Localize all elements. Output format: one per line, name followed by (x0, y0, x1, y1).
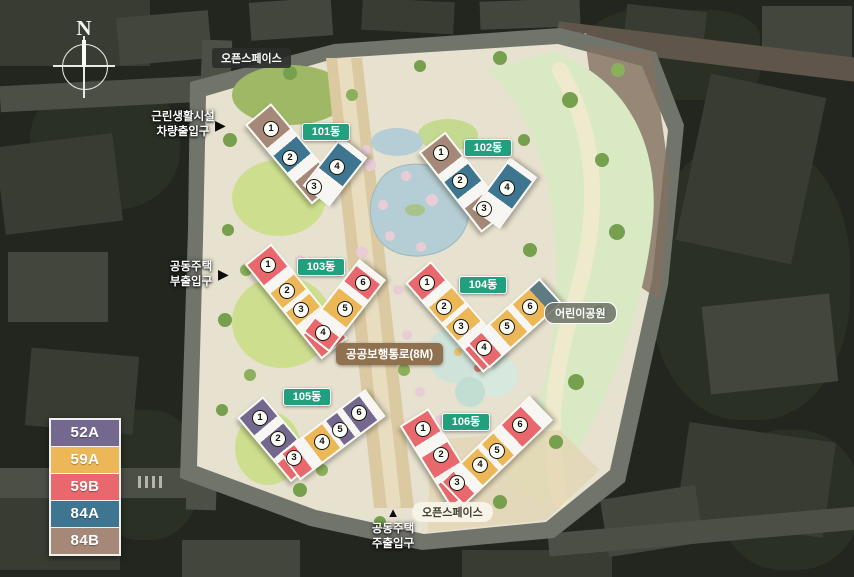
unit-circle: 4 (472, 457, 488, 473)
open-space-label-top: 오픈스페이스 (212, 48, 291, 68)
unit-circle: 2 (279, 283, 295, 299)
building-101-label: 101동 (302, 123, 350, 141)
unit-circle: 2 (436, 299, 452, 315)
entrance-text-line2: 차량출입구 (157, 126, 210, 138)
unit-type-legend: 52A 59A 59B 84A 84B (49, 418, 121, 556)
legend-item-84b: 84B (51, 528, 119, 554)
unit-circle: 3 (476, 201, 492, 217)
apartment-main-entrance-arrow: ▲ (348, 505, 438, 522)
children-park-label: 어린이공원 (544, 302, 617, 324)
north-compass: N (40, 14, 140, 124)
legend-item-84a: 84A (51, 501, 119, 528)
unit-circle: 6 (522, 299, 538, 315)
unit-circle: 4 (476, 340, 492, 356)
unit-circle: 3 (453, 319, 469, 335)
entrance-text-line2: 주출입구 (372, 538, 414, 550)
unit-circle: 4 (314, 434, 330, 450)
building-105-label: 105동 (283, 388, 331, 406)
apartment-side-entrance-arrow: ▶ (218, 266, 229, 283)
unit-circle: 2 (433, 447, 449, 463)
unit-circle: 3 (449, 475, 465, 491)
unit-circle: 1 (263, 121, 279, 137)
unit-circle: 5 (337, 301, 353, 317)
public-walkway-label: 공공보행통로(8M) (336, 343, 443, 365)
retail-vehicle-entrance-arrow: ▶ (215, 117, 226, 134)
unit-circle: 1 (252, 410, 268, 426)
unit-circle: 3 (293, 302, 309, 318)
unit-circle: 5 (332, 422, 348, 438)
unit-circle: 2 (452, 173, 468, 189)
legend-item-59a: 59A (51, 447, 119, 474)
building-102-label: 102동 (464, 139, 512, 157)
unit-circle: 4 (499, 180, 515, 196)
building-103-label: 103동 (297, 258, 345, 276)
unit-circle: 1 (415, 421, 431, 437)
entrance-text-line1: 근린생활시설 (151, 111, 214, 123)
building-104-label: 104동 (459, 276, 507, 294)
unit-circle: 1 (419, 275, 435, 291)
compass-needle (82, 40, 86, 67)
unit-circle: 4 (329, 159, 345, 175)
unit-circle: 1 (433, 145, 449, 161)
unit-circle: 4 (315, 325, 331, 341)
unit-circle: 6 (355, 275, 371, 291)
apartment-main-entrance-label: ▲ 공동주택 주출입구 (348, 505, 438, 552)
unit-circle: 6 (351, 405, 367, 421)
unit-circle: 6 (512, 417, 528, 433)
entrance-text-line1: 공동주택 (170, 261, 212, 273)
entrance-text-line2: 부출입구 (170, 276, 212, 288)
unit-circle: 3 (286, 450, 302, 466)
legend-item-52a: 52A (51, 420, 119, 447)
unit-circle: 2 (270, 431, 286, 447)
unit-circle: 2 (282, 150, 298, 166)
building-106-label: 106동 (442, 413, 490, 431)
unit-circle: 5 (499, 319, 515, 335)
entrance-text-line1: 공동주택 (372, 523, 414, 535)
legend-item-59b: 59B (51, 474, 119, 501)
unit-circle: 1 (260, 257, 276, 273)
site-plan-map: 1 2 3 4 101동 1 2 3 4 102동 1 2 3 4 5 6 10… (0, 0, 854, 577)
unit-circle: 5 (489, 443, 505, 459)
unit-circle: 3 (306, 179, 322, 195)
